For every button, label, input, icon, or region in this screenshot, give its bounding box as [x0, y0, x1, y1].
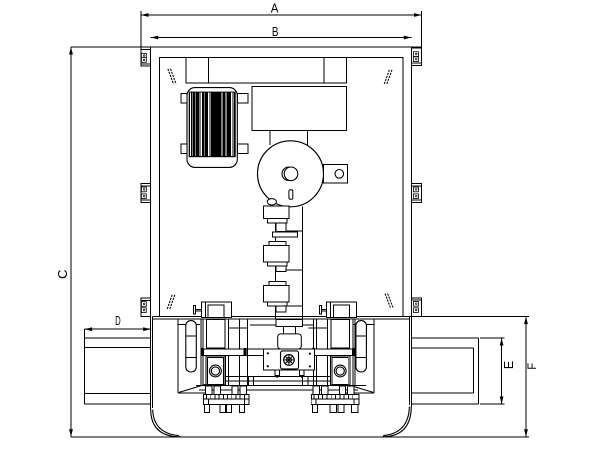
svg-text:D: D [115, 313, 121, 328]
svg-text:B: B [272, 24, 279, 39]
svg-text:C: C [55, 270, 70, 279]
svg-text:A: A [271, 1, 279, 16]
svg-text:E: E [502, 361, 516, 369]
svg-text:F: F [527, 363, 539, 370]
